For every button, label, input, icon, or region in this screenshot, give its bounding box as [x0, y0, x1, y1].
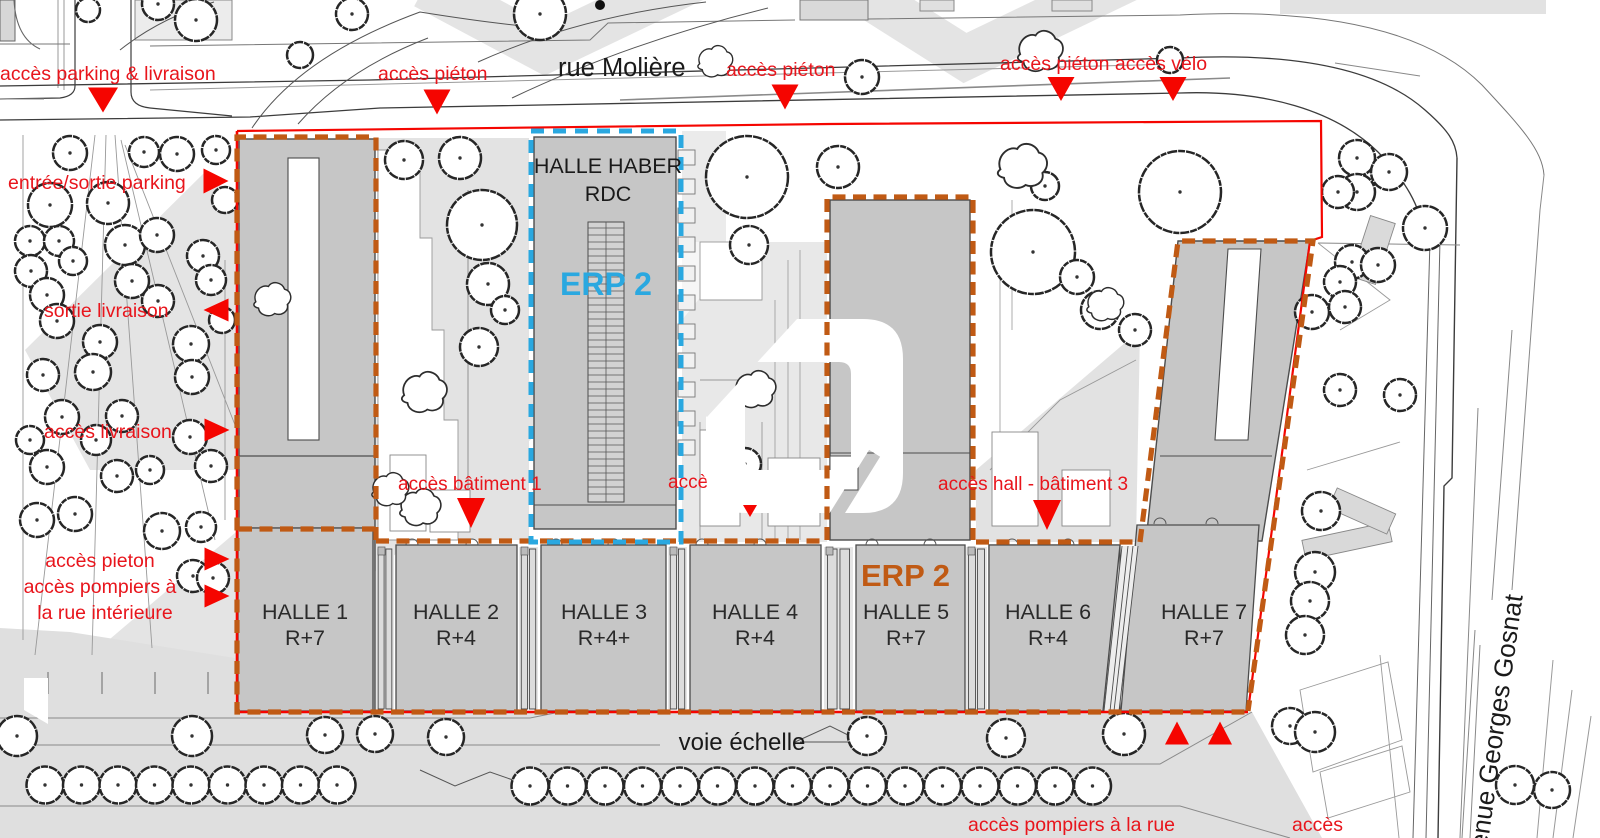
- svg-text:HALLE 2: HALLE 2: [413, 600, 499, 624]
- svg-text:entrée/sortie parking: entrée/sortie parking: [8, 172, 186, 194]
- svg-text:HALLE 5: HALLE 5: [863, 600, 949, 624]
- svg-text:accès pieton: accès pieton: [45, 550, 155, 572]
- svg-text:ERP 2: ERP 2: [560, 266, 652, 302]
- svg-text:accès piéton accès vélo: accès piéton accès vélo: [1000, 53, 1207, 75]
- svg-text:HALLE 4: HALLE 4: [712, 600, 798, 624]
- svg-text:R+4: R+4: [735, 626, 775, 650]
- svg-text:accès parking & livraison: accès parking & livraison: [0, 63, 216, 85]
- svg-text:HALLE 6: HALLE 6: [1005, 600, 1091, 624]
- svg-text:RDC: RDC: [585, 182, 632, 206]
- svg-text:HALLE 1: HALLE 1: [262, 600, 348, 624]
- svg-text:accès: accès: [1292, 814, 1343, 836]
- svg-text:R+7: R+7: [1184, 626, 1224, 650]
- svg-text:sortie livraison: sortie livraison: [44, 300, 169, 322]
- svg-text:accès hall - bâtiment 3: accès hall - bâtiment 3: [938, 474, 1128, 495]
- svg-text:ERP 2: ERP 2: [861, 558, 950, 593]
- svg-text:R+4+: R+4+: [578, 626, 631, 650]
- svg-text:R+7: R+7: [285, 626, 325, 650]
- svg-text:accès livraison: accès livraison: [44, 421, 172, 443]
- svg-text:accès piéton: accès piéton: [378, 63, 488, 85]
- svg-text:R+7: R+7: [886, 626, 926, 650]
- svg-text:HALLE HABER: HALLE HABER: [534, 154, 682, 178]
- svg-text:voie échelle: voie échelle: [679, 729, 806, 756]
- svg-text:accès pompiers à la rue: accès pompiers à la rue: [968, 814, 1175, 836]
- svg-text:HALLE 3: HALLE 3: [561, 600, 647, 624]
- svg-text:R+4: R+4: [436, 626, 476, 650]
- svg-text:accès bâtiment 1: accès bâtiment 1: [398, 474, 542, 495]
- svg-text:HALLE 7: HALLE 7: [1161, 600, 1247, 624]
- svg-text:R+4: R+4: [1028, 626, 1068, 650]
- svg-text:rue Molière: rue Molière: [558, 54, 686, 82]
- svg-text:la rue intérieure: la rue intérieure: [37, 602, 173, 624]
- svg-text:accès pompiers à: accès pompiers à: [24, 576, 177, 598]
- svg-text:accès piéton: accès piéton: [726, 59, 836, 81]
